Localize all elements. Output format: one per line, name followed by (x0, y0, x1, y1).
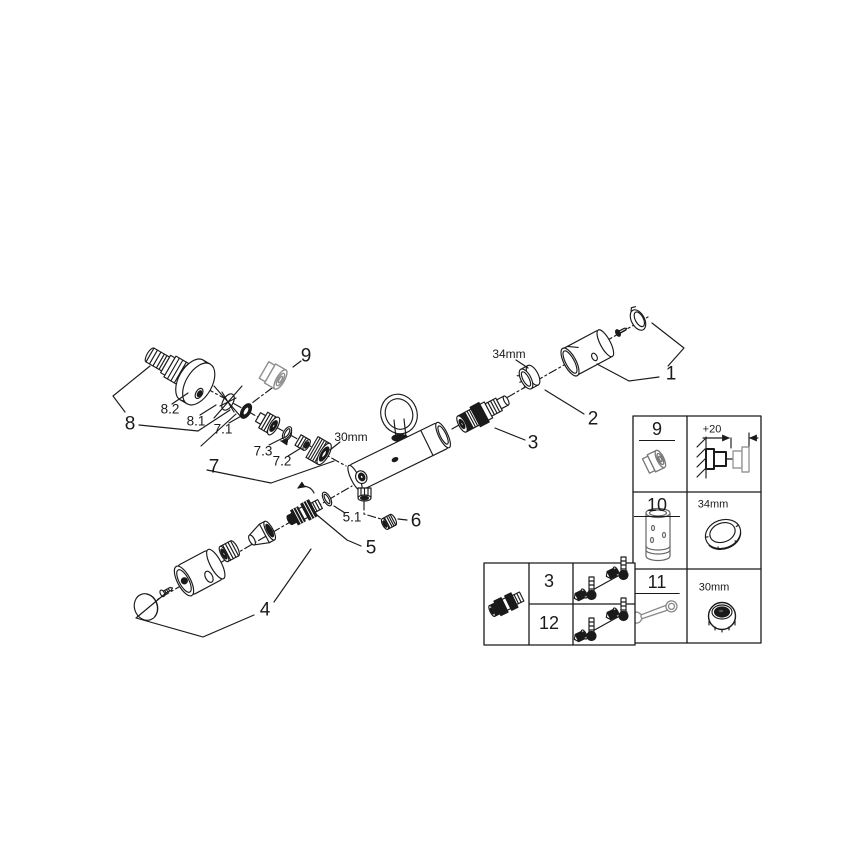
part-3-cartridge (454, 390, 513, 435)
part-5-1-o-ring (320, 491, 333, 508)
legend-dim-34mm: 34mm (698, 500, 729, 511)
legend-row-9-number: 9 (639, 419, 675, 441)
part-label-7-1: 7.1 (214, 422, 233, 436)
dimension-34mm: 34mm (492, 348, 525, 360)
part-label-5-1: 5.1 (343, 510, 362, 524)
part-label-8-2: 8.2 (161, 402, 180, 416)
legend-depth-plus20: +20 (703, 425, 722, 436)
parts-diagram-page: 8 8.2 8.1 7.1 7 7.3 7.2 9 30mm 34mm 3 2 … (0, 0, 868, 868)
legend-row-10-number: 10 (634, 495, 680, 517)
part-4-adapter-nut (217, 539, 241, 562)
part-1-holder (557, 327, 617, 378)
part-label-7: 7 (209, 458, 220, 477)
part-label-1: 1 (666, 365, 677, 384)
part-label-5: 5 (366, 539, 377, 558)
part-label-9: 9 (301, 347, 312, 366)
part-label-6: 6 (411, 512, 422, 531)
part-7-check-valve (253, 408, 282, 436)
part-label-4: 4 (260, 601, 271, 620)
part-label-7-3: 7.3 (254, 444, 273, 458)
part-1-screw (615, 325, 629, 337)
rotate-arrow-5 (298, 486, 314, 493)
dimension-30mm: 30mm (334, 431, 367, 443)
part-7-1-ring (238, 402, 254, 420)
legend-row-12-number: 12 (539, 614, 559, 632)
part-label-3: 3 (528, 434, 539, 453)
part-5-valve (284, 496, 324, 529)
part-label-2: 2 (588, 410, 599, 429)
part-6-plug (380, 513, 398, 530)
legend-dim-30mm: 30mm (699, 583, 730, 594)
part-4-handle-knob (171, 547, 229, 599)
part-1-cap-ring (626, 305, 649, 333)
legend-row-11-number: 11 (635, 572, 680, 594)
legend-row-3-number: 3 (544, 572, 554, 590)
part-label-7-2: 7.2 (273, 454, 292, 468)
part-7-2-insert (295, 435, 312, 452)
part-label-8-1: 8.1 (187, 414, 206, 428)
part-9-cap (259, 360, 290, 391)
part-crossed-out-star (214, 386, 242, 418)
part-2-ring-nut (515, 363, 543, 392)
part-label-8: 8 (125, 415, 136, 434)
part-4-cap-disc (131, 590, 162, 623)
